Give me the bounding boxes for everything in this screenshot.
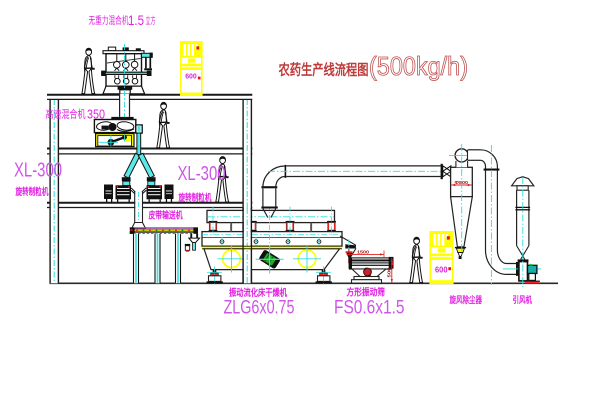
- svg-text:XL-300: XL-300: [178, 163, 226, 185]
- svg-text:农药生产线流程图: 农药生产线流程图: [278, 61, 369, 79]
- svg-text:旋风除尘器: 旋风除尘器: [449, 294, 483, 305]
- svg-text:无重力混合机: 无重力混合机: [89, 14, 129, 27]
- svg-text:1500: 1500: [357, 249, 370, 254]
- svg-text:600: 600: [185, 72, 197, 81]
- svg-text:皮带输送机: 皮带输送机: [148, 209, 183, 221]
- svg-text:ZLG6x0.75: ZLG6x0.75: [224, 298, 295, 319]
- svg-text:500: 500: [387, 267, 392, 278]
- svg-text:立方: 立方: [146, 15, 156, 27]
- svg-text:1.5: 1.5: [128, 12, 144, 28]
- svg-text:XL-300: XL-300: [14, 160, 62, 182]
- svg-text:(500kg/h): (500kg/h): [369, 51, 468, 81]
- svg-text:FS0.6x1.5: FS0.6x1.5: [334, 298, 405, 319]
- svg-text:600: 600: [435, 266, 448, 275]
- svg-text:旋转制粒机: 旋转制粒机: [178, 192, 212, 204]
- svg-text:引风机: 引风机: [513, 294, 533, 305]
- svg-text:旋转制粒机: 旋转制粒机: [15, 186, 49, 198]
- svg-text:高速混合机: 高速混合机: [46, 108, 86, 121]
